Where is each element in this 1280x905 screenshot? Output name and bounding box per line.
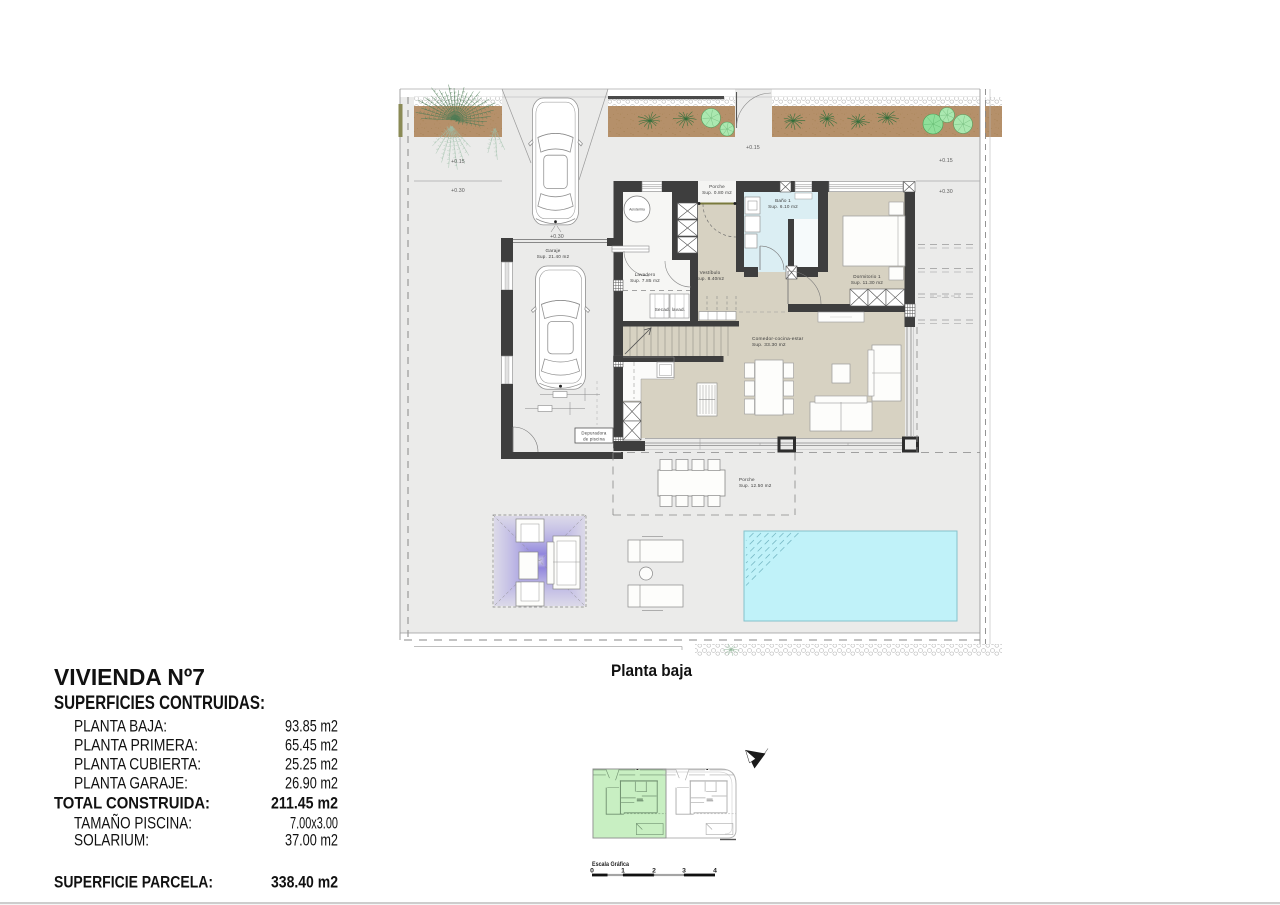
svg-text:Sup. 11.30 m2: Sup. 11.30 m2 <box>851 280 883 285</box>
svg-text:SUPERFICIES CONTRUIDAS:: SUPERFICIES CONTRUIDAS: <box>54 693 265 714</box>
svg-text:Porche: Porche <box>739 477 755 482</box>
svg-text:4: 4 <box>713 868 717 875</box>
svg-text:Sup. 7.85 m2: Sup. 7.85 m2 <box>630 278 660 283</box>
svg-text:Comedor-cocina-estar: Comedor-cocina-estar <box>752 336 804 342</box>
svg-text:37.00 m2: 37.00 m2 <box>285 831 338 850</box>
svg-text:PLANTA PRIMERA:: PLANTA PRIMERA: <box>74 736 198 755</box>
svg-text:Baño 1: Baño 1 <box>775 198 791 203</box>
svg-text:Porche: Porche <box>709 184 725 189</box>
svg-text:Sup. 0.80 m2: Sup. 0.80 m2 <box>702 190 732 195</box>
svg-text:3: 3 <box>682 868 686 875</box>
svg-text:1: 1 <box>621 868 625 875</box>
svg-text:VIVIENDA Nº7: VIVIENDA Nº7 <box>54 664 205 690</box>
svg-text:SOLARIUM:: SOLARIUM: <box>74 831 149 850</box>
svg-text:+0.15: +0.15 <box>939 158 953 164</box>
svg-text:PLANTA GARAJE:: PLANTA GARAJE: <box>74 774 188 793</box>
svg-text:PLANTA BAJA:: PLANTA BAJA: <box>74 717 167 736</box>
svg-text:Sup. 8.40m2: Sup. 8.40m2 <box>696 276 724 281</box>
svg-text:+0.15: +0.15 <box>451 159 465 165</box>
svg-text:Planta baja: Planta baja <box>611 661 692 680</box>
svg-text:Sup. 6.10 m2: Sup. 6.10 m2 <box>768 204 798 209</box>
svg-text:de piscina: de piscina <box>583 437 605 442</box>
svg-text:65.45 m2: 65.45 m2 <box>285 736 338 755</box>
svg-text:93.85 m2: 93.85 m2 <box>285 717 338 736</box>
svg-text:0: 0 <box>590 868 594 875</box>
svg-text:Sup. 33.30 m2: Sup. 33.30 m2 <box>752 342 786 348</box>
svg-text:211.45 m2: 211.45 m2 <box>271 794 338 813</box>
svg-text:+0.30: +0.30 <box>939 189 953 195</box>
svg-text:Sup. 21.40 m2: Sup. 21.40 m2 <box>537 254 570 259</box>
svg-text:2: 2 <box>652 868 656 875</box>
svg-text:+0.30: +0.30 <box>451 188 465 194</box>
svg-text:SUPERFICIE PARCELA:: SUPERFICIE PARCELA: <box>54 873 213 892</box>
svg-text:+0.15: +0.15 <box>746 145 760 151</box>
svg-text:Depuradora: Depuradora <box>581 431 607 436</box>
svg-text:TOTAL CONSTRUIDA:: TOTAL CONSTRUIDA: <box>54 794 210 813</box>
svg-text:Sup. 12.50 m2: Sup. 12.50 m2 <box>739 483 772 488</box>
svg-text:Secad. lavad.: Secad. lavad. <box>655 307 685 312</box>
svg-text:Vestíbulo: Vestíbulo <box>700 270 721 275</box>
svg-text:25.25 m2: 25.25 m2 <box>285 755 338 774</box>
svg-text:Lavadero: Lavadero <box>635 272 656 277</box>
svg-text:26.90 m2: 26.90 m2 <box>285 774 338 793</box>
svg-text:Dormitorio 1: Dormitorio 1 <box>853 274 881 279</box>
svg-text:338.40 m2: 338.40 m2 <box>271 873 338 892</box>
svg-text:PLANTA CUBIERTA:: PLANTA CUBIERTA: <box>74 755 201 774</box>
svg-text:Aerotermia: Aerotermia <box>629 208 645 212</box>
svg-text:Garaje: Garaje <box>546 248 561 253</box>
